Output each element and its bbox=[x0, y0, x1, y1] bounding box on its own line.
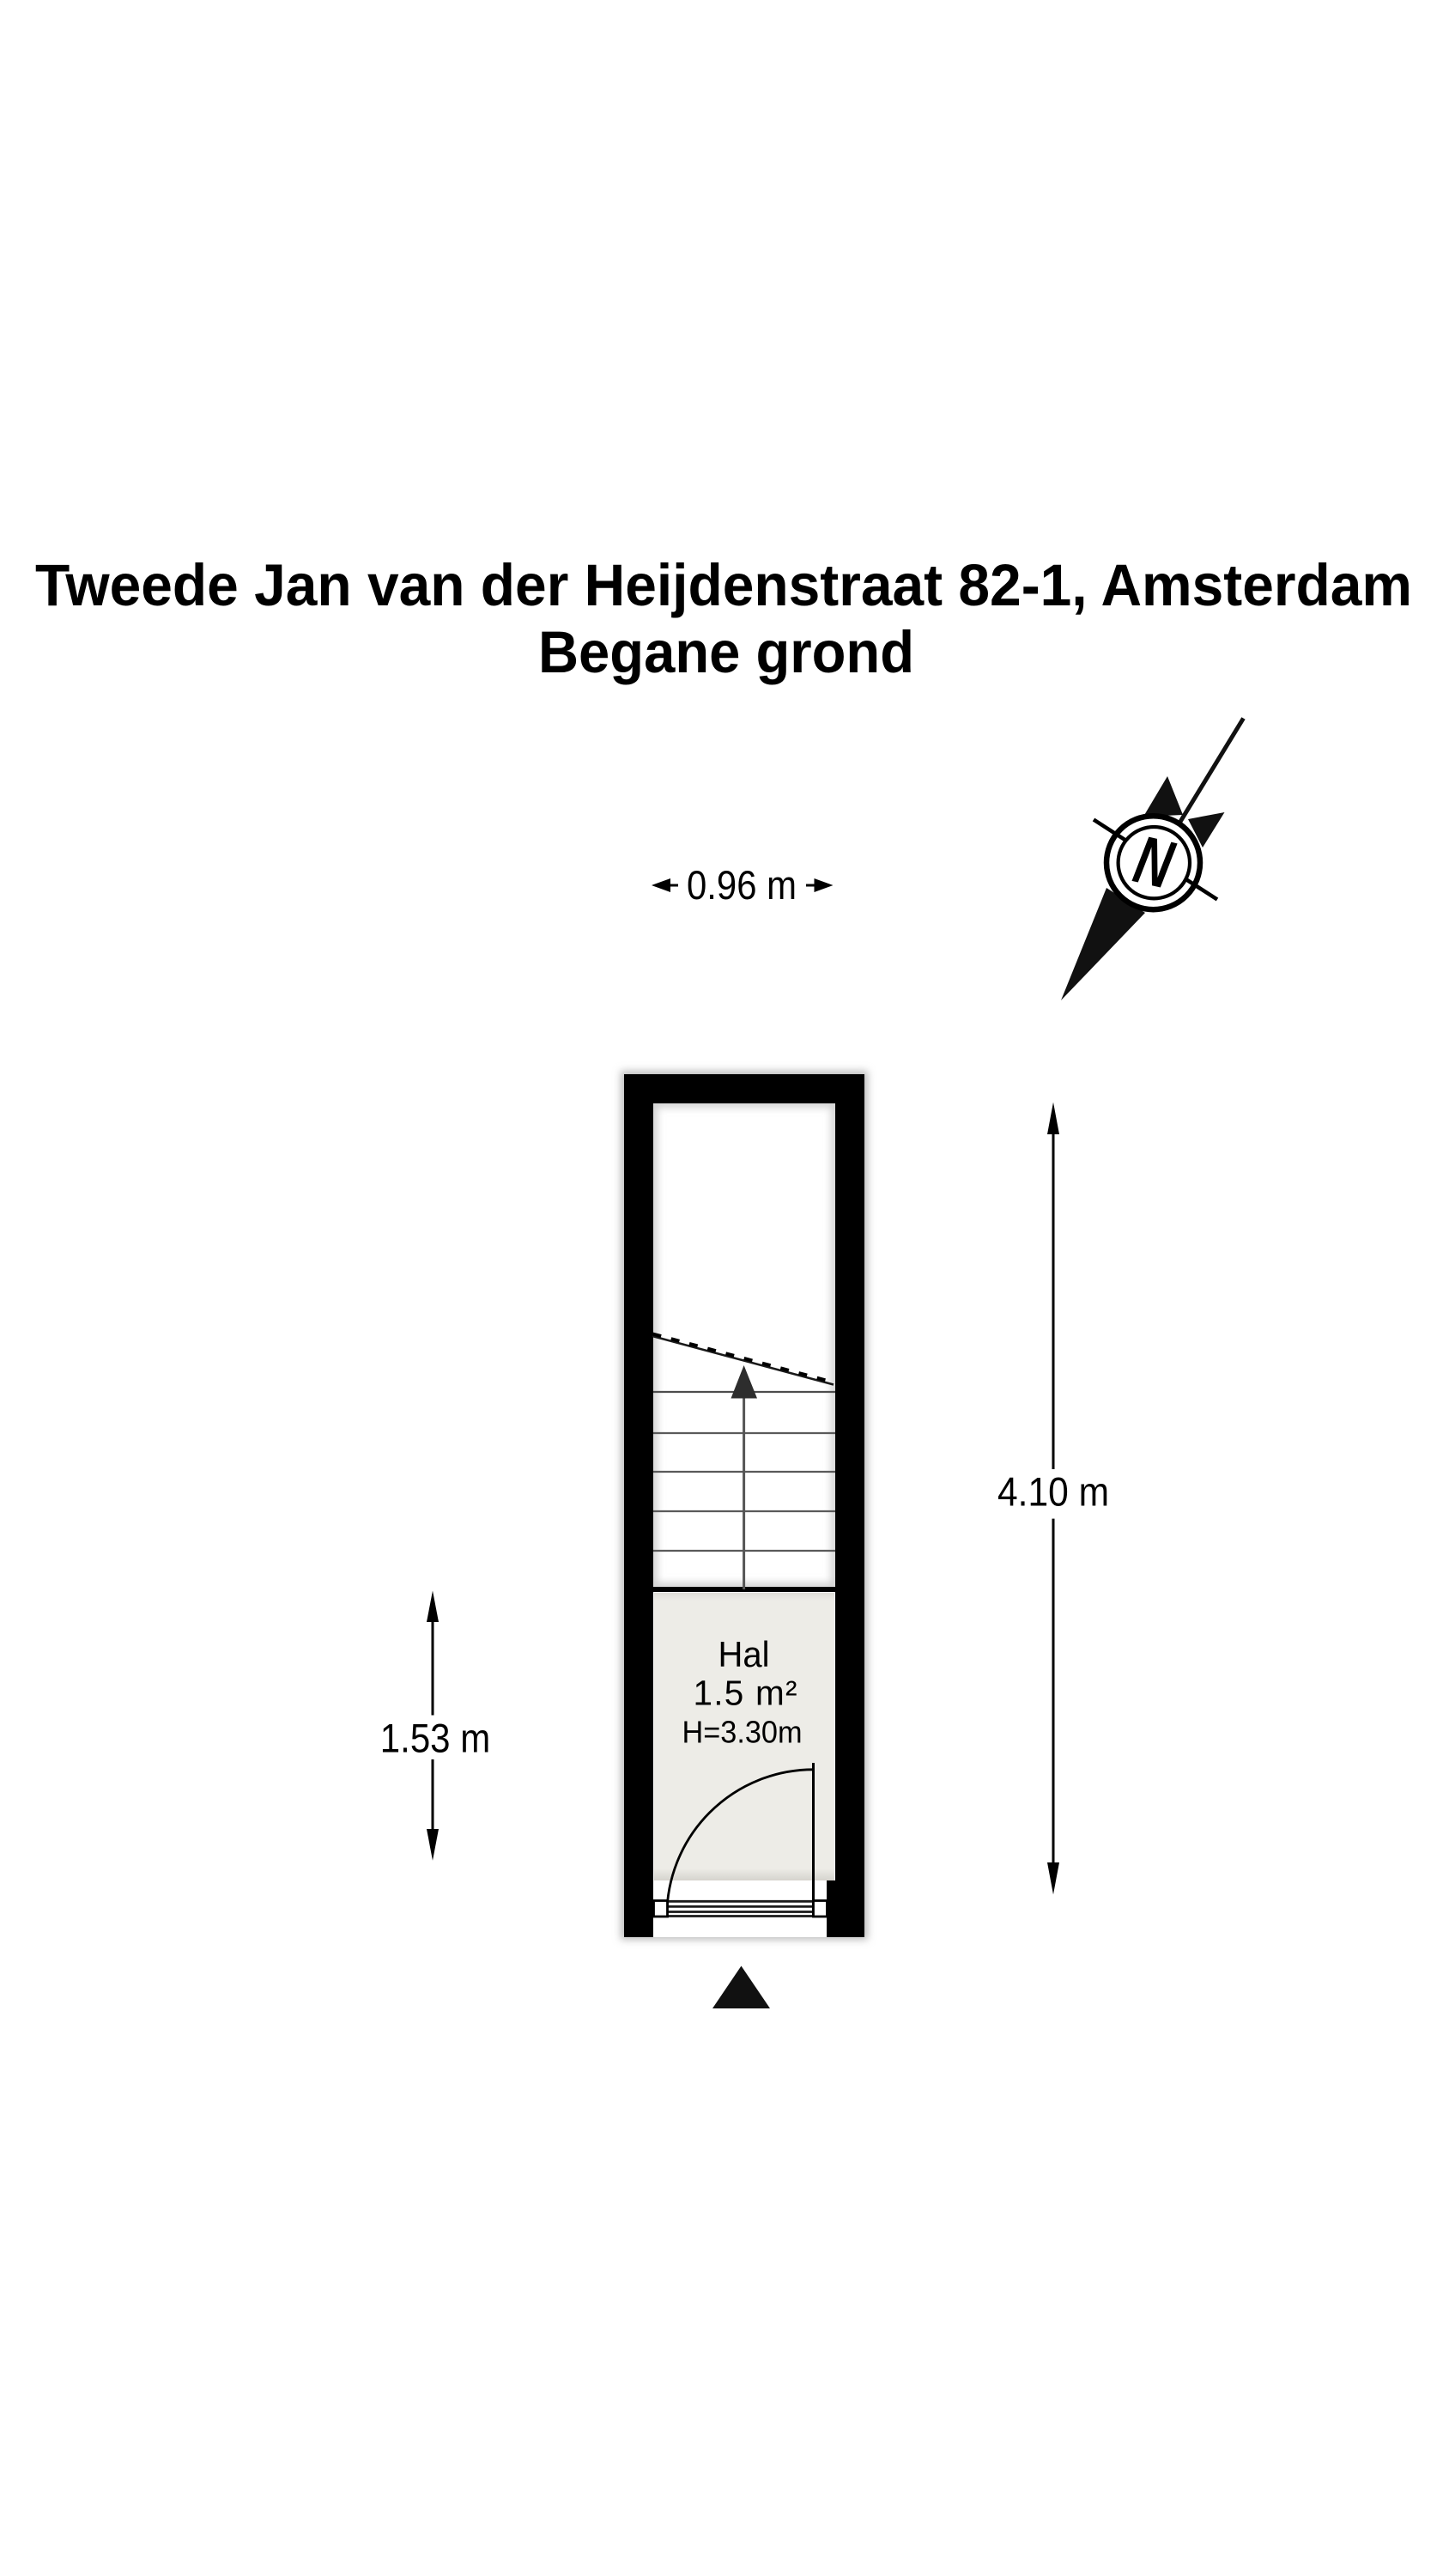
svg-text:0.96 m: 0.96 m bbox=[687, 862, 797, 908]
svg-text:Hal: Hal bbox=[718, 1634, 770, 1674]
svg-text:H=3.30m: H=3.30m bbox=[682, 1715, 803, 1750]
svg-text:1.5 m²: 1.5 m² bbox=[694, 1674, 797, 1713]
svg-text:Begane grond: Begane grond bbox=[538, 619, 914, 685]
svg-text:4.10 m: 4.10 m bbox=[997, 1469, 1109, 1515]
svg-text:Tweede Jan van der Heijdenstra: Tweede Jan van der Heijdenstraat 82-1, A… bbox=[35, 552, 1412, 618]
svg-text:1.53 m: 1.53 m bbox=[380, 1715, 490, 1760]
